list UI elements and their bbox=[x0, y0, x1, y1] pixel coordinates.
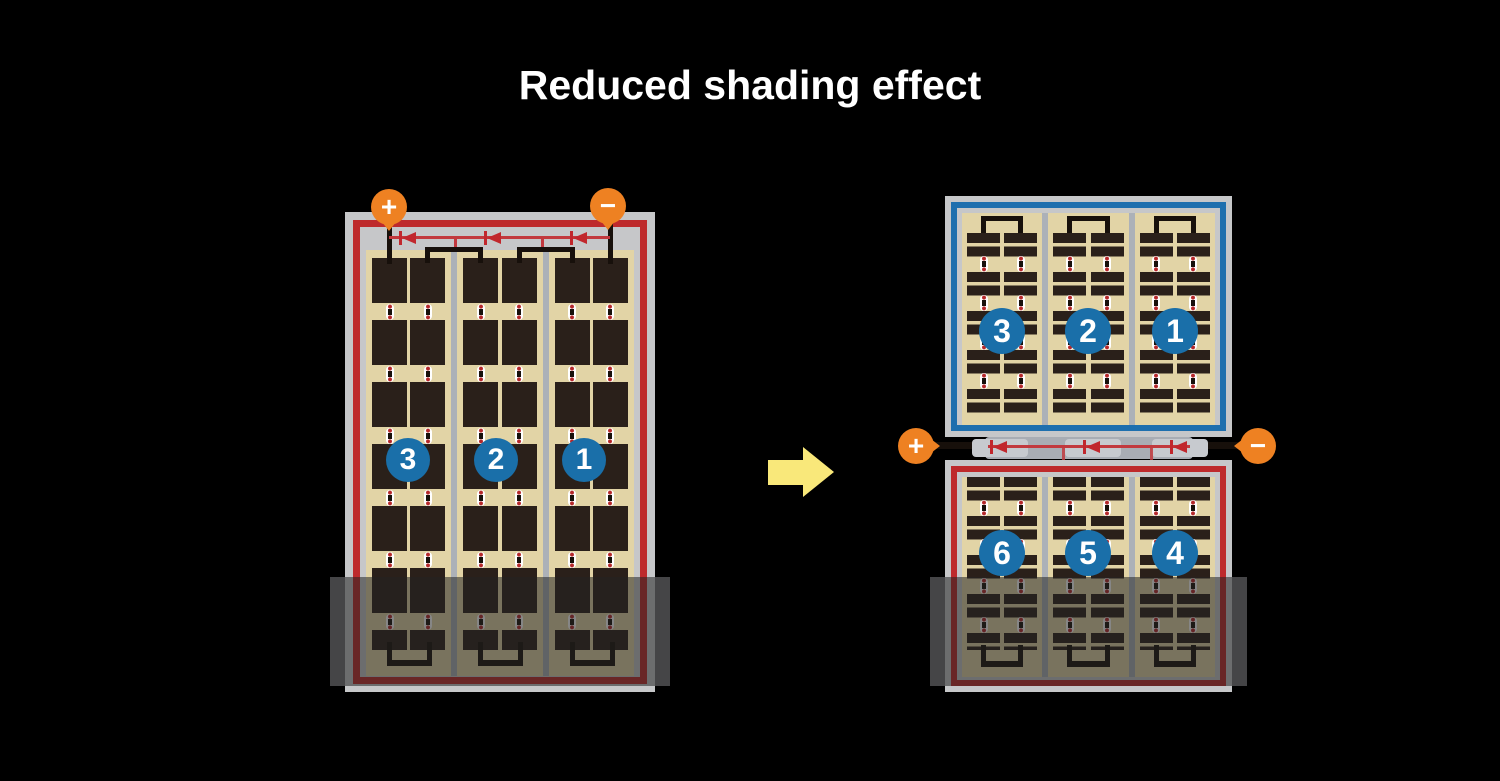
cell-tab bbox=[386, 366, 394, 382]
minus-sign: − bbox=[1250, 431, 1266, 461]
shade-overhang bbox=[930, 577, 945, 686]
cell-tab bbox=[424, 304, 432, 320]
shade-overhang bbox=[1232, 577, 1247, 686]
cell-tab bbox=[980, 500, 988, 516]
string-badge: 5 bbox=[1065, 530, 1111, 576]
cell-tab bbox=[606, 304, 614, 320]
cell-tab bbox=[1017, 295, 1025, 311]
cell-tab bbox=[606, 366, 614, 382]
cell-tab bbox=[568, 366, 576, 382]
cell-tab bbox=[1066, 256, 1074, 272]
terminal-pointer bbox=[601, 221, 615, 230]
cell-tab bbox=[515, 428, 523, 444]
string-badge: 3 bbox=[979, 308, 1025, 354]
cell-tab bbox=[1152, 256, 1160, 272]
bypass-diode-icon bbox=[487, 232, 501, 244]
cell-tab bbox=[1189, 373, 1197, 389]
cell-tab bbox=[980, 256, 988, 272]
plus-sign: + bbox=[908, 431, 924, 461]
cell-tab bbox=[424, 366, 432, 382]
diode-bus-stub bbox=[1150, 446, 1153, 460]
cell-tab bbox=[1152, 295, 1160, 311]
cell-tab bbox=[568, 304, 576, 320]
cell-tab bbox=[606, 428, 614, 444]
cell-tab bbox=[424, 552, 432, 568]
terminal-pointer bbox=[1234, 439, 1243, 453]
cell-tab bbox=[1152, 373, 1160, 389]
terminal-pointer bbox=[931, 439, 940, 453]
string-badge: 6 bbox=[979, 530, 1025, 576]
bypass-diode-icon bbox=[1086, 441, 1100, 453]
cell-tab bbox=[515, 366, 523, 382]
cell-tab bbox=[515, 304, 523, 320]
cell-tab bbox=[1017, 500, 1025, 516]
plus-sign: + bbox=[381, 192, 397, 222]
bypass-diode-icon bbox=[402, 232, 416, 244]
string-badge: 2 bbox=[474, 438, 518, 482]
cell-tab bbox=[477, 490, 485, 506]
diagram-title: Reduced shading effect bbox=[0, 62, 1500, 109]
shade-overhang bbox=[655, 577, 670, 686]
top-series-connector bbox=[425, 247, 483, 263]
cell-tab bbox=[1017, 373, 1025, 389]
cell-tab bbox=[386, 490, 394, 506]
cell-tab bbox=[424, 428, 432, 444]
cell-tab bbox=[1103, 256, 1111, 272]
cell-tab bbox=[515, 552, 523, 568]
terminal-pointer bbox=[382, 222, 396, 231]
cell-tab bbox=[1066, 295, 1074, 311]
reduced-shading-diagram: Reduced shading effect 3 2 1 3 2 1 6 5 4… bbox=[0, 0, 1500, 781]
cell-tab bbox=[606, 490, 614, 506]
cell-tab bbox=[1189, 295, 1197, 311]
cell-tab bbox=[515, 490, 523, 506]
string-badge: 2 bbox=[1065, 308, 1111, 354]
minus-terminal-icon: − bbox=[590, 188, 626, 224]
minus-terminal-icon: − bbox=[1240, 428, 1276, 464]
cell-tab bbox=[1017, 256, 1025, 272]
cell-tab bbox=[980, 295, 988, 311]
cell-tab bbox=[606, 552, 614, 568]
transition-arrow-tip bbox=[803, 447, 834, 497]
cell-tab bbox=[980, 373, 988, 389]
string-badge: 4 bbox=[1152, 530, 1198, 576]
cell-tab bbox=[1103, 295, 1111, 311]
string-badge: 1 bbox=[1152, 308, 1198, 354]
bypass-diode-icon bbox=[993, 441, 1007, 453]
cell-tab bbox=[1066, 500, 1074, 516]
transition-arrow-icon bbox=[768, 460, 803, 485]
shade-overlay bbox=[945, 577, 1232, 686]
cell-tab bbox=[568, 490, 576, 506]
cell-tab bbox=[1189, 256, 1197, 272]
shade-overhang bbox=[330, 577, 345, 686]
plus-terminal-icon: + bbox=[371, 189, 407, 225]
cell-tab bbox=[1103, 500, 1111, 516]
plus-terminal-icon: + bbox=[898, 428, 934, 464]
cell-tab bbox=[386, 304, 394, 320]
string-badge: 3 bbox=[386, 438, 430, 482]
diode-bus-stub bbox=[1062, 446, 1065, 460]
minus-sign: − bbox=[600, 191, 616, 221]
cell-tab bbox=[1189, 500, 1197, 516]
string-badge: 1 bbox=[562, 438, 606, 482]
cell-tab bbox=[477, 304, 485, 320]
cell-tab bbox=[424, 490, 432, 506]
bypass-diode-icon bbox=[573, 232, 587, 244]
cell-tab bbox=[568, 552, 576, 568]
cell-tab bbox=[477, 366, 485, 382]
cell-tab bbox=[477, 552, 485, 568]
cell-tab bbox=[386, 428, 394, 444]
bypass-diode-icon bbox=[1173, 441, 1187, 453]
cell-tab bbox=[1066, 373, 1074, 389]
shade-overlay bbox=[345, 577, 655, 686]
top-series-connector bbox=[517, 247, 575, 263]
cell-tab bbox=[386, 552, 394, 568]
cell-tab bbox=[1152, 500, 1160, 516]
cell-tab bbox=[1103, 373, 1111, 389]
